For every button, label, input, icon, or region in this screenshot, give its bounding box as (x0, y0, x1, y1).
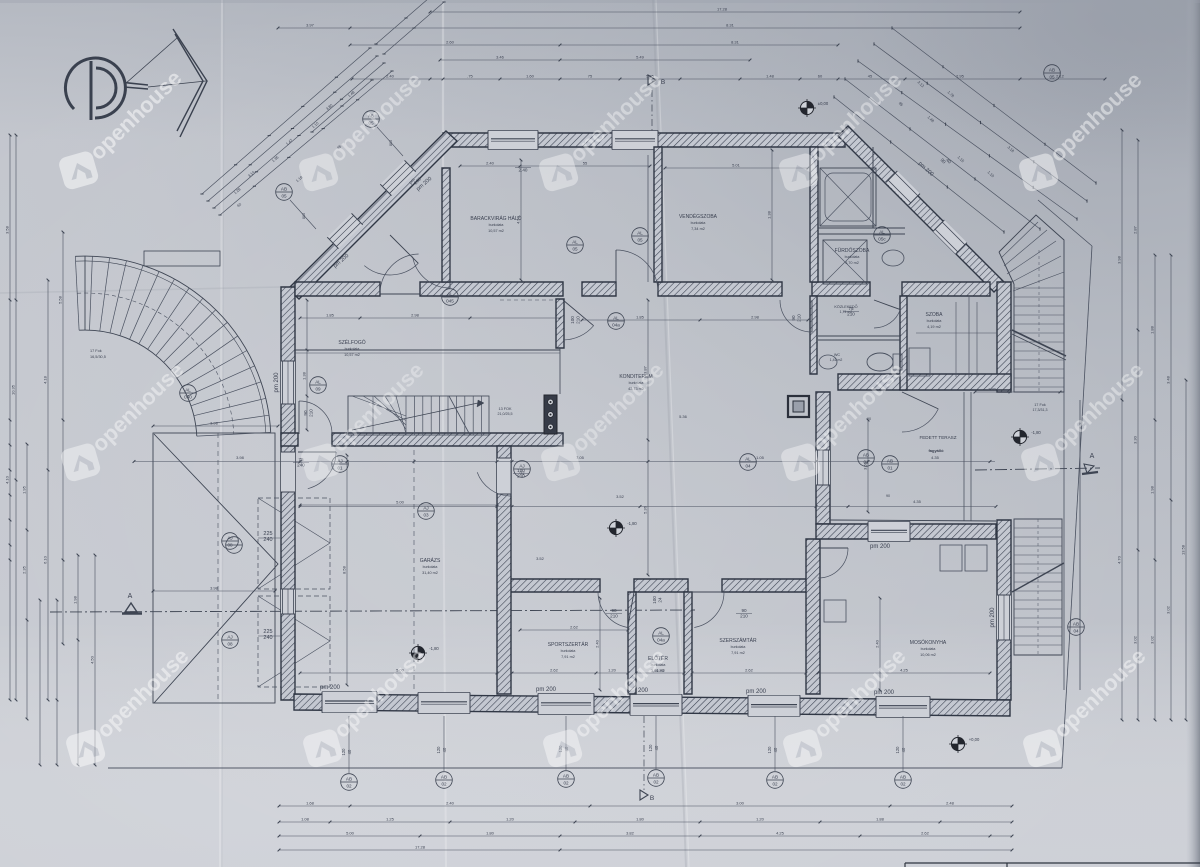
svg-text:75: 75 (848, 306, 854, 311)
svg-text:AL: AL (745, 456, 751, 461)
svg-text:GARÁZS: GARÁZS (420, 557, 441, 564)
svg-text:2.87: 2.87 (1133, 225, 1138, 234)
svg-text:2.40: 2.40 (875, 639, 880, 648)
svg-text:1.68: 1.68 (306, 801, 315, 806)
svg-text:A: A (128, 593, 133, 600)
svg-text:210: 210 (740, 614, 748, 619)
svg-text:1,41 m2: 1,41 m2 (830, 358, 843, 362)
svg-text:05c: 05c (878, 236, 886, 241)
svg-text:13.58: 13.58 (1181, 544, 1186, 555)
svg-text:60: 60 (818, 74, 823, 79)
svg-text:1.38: 1.38 (767, 210, 772, 219)
svg-text:AB: AB (1073, 621, 1079, 626)
svg-text:16,5/30,5: 16,5/30,5 (90, 355, 106, 359)
svg-text:2.40: 2.40 (446, 801, 455, 806)
svg-text:5.36: 5.36 (643, 505, 648, 514)
svg-text:2.62: 2.62 (570, 625, 579, 630)
svg-text:3.98: 3.98 (236, 455, 245, 460)
svg-text:2.35: 2.35 (22, 565, 27, 574)
svg-text:3.02: 3.02 (1150, 635, 1155, 644)
svg-text:8.58: 8.58 (342, 565, 347, 574)
svg-text:90: 90 (886, 494, 890, 498)
svg-text:1.20: 1.20 (608, 668, 617, 673)
svg-text:40: 40 (347, 749, 352, 754)
svg-text:A: A (1090, 453, 1095, 460)
svg-text:4,70 m2: 4,70 m2 (845, 261, 859, 265)
svg-text:210: 210 (610, 614, 618, 619)
svg-text:05: 05 (637, 237, 643, 242)
svg-text:burkolata: burkolata (691, 221, 706, 225)
svg-text:1.20: 1.20 (988, 387, 997, 392)
svg-text:1.80: 1.80 (636, 817, 645, 822)
svg-text:MOSÓKONYHA: MOSÓKONYHA (910, 639, 947, 646)
svg-text:5.49: 5.49 (636, 55, 645, 60)
svg-text:02: 02 (653, 779, 659, 784)
svg-text:40: 40 (442, 747, 447, 752)
svg-text:-1,80: -1,80 (627, 521, 637, 526)
svg-text:2.98: 2.98 (751, 315, 760, 320)
svg-text:31,40 m2: 31,40 m2 (422, 571, 438, 575)
svg-text:02: 02 (519, 470, 525, 475)
svg-text:AB: AB (653, 772, 659, 777)
svg-text:3.98: 3.98 (210, 586, 219, 591)
svg-text:17 Fok: 17 Fok (1034, 403, 1046, 407)
svg-text:+0,00: +0,00 (969, 737, 980, 742)
svg-text:AJ: AJ (519, 463, 524, 468)
svg-text:AL: AL (879, 229, 885, 234)
svg-text:AB: AB (863, 452, 869, 457)
svg-text:.75: .75 (467, 74, 473, 79)
svg-text:100: 100 (652, 596, 657, 604)
svg-text:1.38: 1.38 (302, 371, 307, 380)
svg-text:AL: AL (637, 230, 643, 235)
svg-text:FÜRDŐSZOBA: FÜRDŐSZOBA (835, 247, 870, 254)
svg-text:AL: AL (315, 379, 321, 384)
svg-text:13 FOK: 13 FOK (498, 407, 512, 411)
svg-text:17.28: 17.28 (717, 7, 728, 12)
svg-text:3.02: 3.02 (1133, 635, 1138, 644)
svg-text:AB: AB (772, 774, 778, 779)
svg-text:805: 805 (389, 140, 393, 146)
svg-text:1.20: 1.20 (756, 817, 765, 822)
svg-text:8.31: 8.31 (731, 40, 740, 45)
svg-text:1.98: 1.98 (73, 595, 78, 604)
svg-text:burkolata: burkolata (921, 647, 936, 651)
svg-text:VENDÉGSZOBA: VENDÉGSZOBA (679, 213, 718, 220)
svg-text:burkolata: burkolata (345, 347, 360, 351)
svg-text:01: 01 (887, 465, 893, 470)
svg-text:2.40: 2.40 (486, 161, 495, 166)
svg-text:4.18: 4.18 (43, 375, 48, 384)
svg-text:AB: AB (900, 774, 906, 779)
svg-text:AL: AL (447, 291, 453, 296)
svg-text:pm 200: pm 200 (990, 607, 996, 628)
svg-text:BARACKVIRÁG HÁLÓ: BARACKVIRÁG HÁLÓ (470, 215, 521, 222)
svg-text:5.36: 5.36 (679, 414, 688, 419)
svg-text:SZOBA: SZOBA (926, 312, 944, 318)
svg-text:AB: AB (346, 776, 352, 781)
svg-text:04: 04 (1073, 628, 1079, 633)
svg-text:4,19 m2: 4,19 m2 (927, 325, 941, 329)
svg-text:burkolata: burkolata (561, 649, 576, 653)
svg-text:02: 02 (346, 783, 352, 788)
svg-text:fagyálló: fagyálló (928, 448, 944, 453)
svg-text:01: 01 (863, 459, 869, 464)
svg-text:pm 200: pm 200 (536, 687, 557, 693)
svg-text:24: 24 (658, 597, 663, 603)
svg-text:1.48: 1.48 (766, 74, 775, 79)
svg-text:090: 090 (184, 394, 192, 399)
svg-text:AL: AL (658, 630, 664, 635)
svg-text:3.02: 3.02 (1166, 605, 1171, 614)
svg-text:10,57 m2: 10,57 m2 (488, 229, 504, 233)
svg-text:05: 05 (1049, 74, 1055, 79)
svg-text:40: 40 (773, 747, 778, 752)
svg-text:90: 90 (741, 608, 747, 613)
svg-text:AL: AL (613, 315, 619, 320)
svg-text:045: 045 (446, 298, 454, 303)
svg-text:pm 200: pm 200 (746, 689, 767, 695)
svg-text:AB: AB (887, 458, 893, 463)
svg-text:2.62: 2.62 (921, 831, 930, 836)
svg-text:3.98: 3.98 (1117, 255, 1122, 264)
svg-text:2.62: 2.62 (550, 668, 559, 673)
svg-text:09: 09 (315, 386, 321, 391)
svg-text:90: 90 (611, 608, 617, 613)
svg-text:75: 75 (588, 74, 593, 79)
svg-text:05: 05 (281, 193, 287, 198)
svg-text:4.70: 4.70 (1117, 555, 1122, 564)
svg-text:AL: AL (572, 239, 578, 244)
svg-text:10.35: 10.35 (11, 384, 16, 395)
svg-text:5.01: 5.01 (732, 163, 741, 168)
svg-text:AB: AB (281, 186, 287, 191)
svg-text:04a: 04a (612, 322, 620, 327)
svg-text:1.85: 1.85 (326, 313, 335, 318)
svg-text:210: 210 (309, 409, 314, 417)
svg-text:FEDETT TERASZ: FEDETT TERASZ (919, 435, 956, 440)
svg-text:3.46: 3.46 (496, 55, 505, 60)
svg-text:3.30: 3.30 (1133, 435, 1138, 444)
svg-text:5.00: 5.00 (346, 831, 355, 836)
svg-text:1.25: 1.25 (386, 817, 395, 822)
svg-text:10,06 m2: 10,06 m2 (920, 653, 936, 657)
svg-text:2.40: 2.40 (595, 639, 600, 648)
svg-text:burkolata: burkolata (731, 645, 746, 649)
svg-text:4.25: 4.25 (776, 831, 785, 836)
svg-text:4.35: 4.35 (913, 499, 922, 504)
svg-text:AB: AB (1049, 67, 1055, 72)
svg-text:120: 120 (436, 746, 441, 754)
svg-text:3.52: 3.52 (536, 556, 545, 561)
svg-text:WC: WC (834, 353, 841, 357)
svg-text:pm 200: pm 200 (320, 685, 341, 691)
svg-text:SZÉLFOGÓ: SZÉLFOGÓ (338, 339, 365, 346)
svg-text:2.62: 2.62 (745, 668, 754, 673)
svg-text:02: 02 (900, 781, 906, 786)
svg-text:2.48: 2.48 (946, 801, 955, 806)
svg-text:B: B (650, 795, 654, 802)
svg-text:210: 210 (797, 314, 802, 322)
svg-text:3.52: 3.52 (616, 494, 625, 499)
svg-text:4.50: 4.50 (90, 655, 95, 664)
svg-text:40: 40 (654, 745, 659, 750)
svg-text:17,3/31,3: 17,3/31,3 (1033, 408, 1048, 412)
svg-text:AB: AB (563, 773, 569, 778)
svg-text:02: 02 (441, 781, 447, 786)
svg-text:08: 08 (227, 641, 233, 646)
svg-text:1.98: 1.98 (1150, 485, 1155, 494)
svg-text:7,91 m2: 7,91 m2 (561, 655, 575, 659)
svg-text:17.28: 17.28 (415, 845, 426, 850)
svg-text:3.48: 3.48 (1166, 375, 1171, 384)
svg-text:02: 02 (772, 781, 778, 786)
svg-text:3.00: 3.00 (736, 801, 745, 806)
svg-text:3.58: 3.58 (5, 225, 10, 234)
svg-text:-1,80: -1,80 (429, 646, 439, 651)
svg-text:5.58: 5.58 (58, 295, 63, 304)
svg-text:7,91 m2: 7,91 m2 (731, 651, 745, 655)
svg-text:1.60: 1.60 (526, 74, 535, 79)
svg-text:120: 120 (895, 746, 900, 754)
svg-text:8.31: 8.31 (726, 23, 735, 28)
svg-text:1.05: 1.05 (756, 455, 765, 460)
svg-text:100: 100 (570, 316, 575, 324)
svg-text:burkolata: burkolata (423, 565, 438, 569)
svg-text:AJ: AJ (423, 505, 428, 510)
svg-text:2.98: 2.98 (411, 313, 420, 318)
svg-text:10,57 m2: 10,57 m2 (344, 353, 360, 357)
svg-text:4.53: 4.53 (516, 215, 521, 224)
svg-text:3.97: 3.97 (306, 23, 315, 28)
svg-text:3.82: 3.82 (626, 831, 635, 836)
svg-text:7,34 m2: 7,34 m2 (691, 227, 705, 231)
svg-text:AL: AL (185, 387, 191, 392)
svg-text:4.35: 4.35 (931, 455, 940, 460)
svg-text:5.00: 5.00 (396, 500, 405, 505)
svg-text:pm 200: pm 200 (870, 544, 891, 550)
svg-text:burkolata: burkolata (927, 319, 942, 323)
svg-text:45: 45 (868, 74, 873, 79)
svg-text:2.40: 2.40 (386, 74, 395, 79)
svg-text:1.85: 1.85 (636, 315, 645, 320)
svg-text:AB: AB (441, 774, 447, 779)
svg-text:1.88: 1.88 (876, 817, 885, 822)
svg-text:6.10: 6.10 (43, 555, 48, 564)
svg-text:2.40: 2.40 (519, 168, 528, 173)
svg-text:-1,80: -1,80 (1031, 430, 1041, 435)
svg-text:burkolata: burkolata (489, 223, 504, 227)
svg-text:SPORTSZERTÁR: SPORTSZERTÁR (548, 641, 589, 648)
svg-text:40: 40 (901, 747, 906, 752)
svg-text:17 Fok: 17 Fok (90, 349, 102, 353)
svg-text:2.60: 2.60 (446, 40, 455, 45)
svg-text:21,0/25,5: 21,0/25,5 (498, 412, 513, 416)
svg-text:210: 210 (576, 316, 581, 324)
svg-text:03: 03 (423, 512, 429, 517)
svg-text:120: 120 (767, 746, 772, 754)
svg-text:±0,00: ±0,00 (818, 101, 829, 106)
svg-text:120: 120 (648, 744, 653, 752)
svg-text:pm 200: pm 200 (274, 372, 280, 393)
svg-text:05: 05 (572, 246, 578, 251)
svg-text:1.95: 1.95 (22, 485, 27, 494)
svg-text:1.08: 1.08 (301, 817, 310, 822)
svg-text:1.20: 1.20 (506, 817, 515, 822)
svg-text:02: 02 (563, 780, 569, 785)
svg-text:210: 210 (847, 312, 855, 317)
svg-text:04: 04 (745, 463, 751, 468)
svg-text:1.80: 1.80 (486, 831, 495, 836)
svg-text:1.88: 1.88 (1150, 325, 1155, 334)
svg-text:4.10: 4.10 (5, 475, 10, 484)
svg-text:805: 805 (302, 213, 306, 219)
svg-text:burkolata: burkolata (845, 255, 860, 259)
svg-text:SZERSZÁMTÁR: SZERSZÁMTÁR (719, 637, 757, 644)
svg-text:KÖZLEKEDŐ: KÖZLEKEDŐ (834, 304, 857, 309)
svg-text:04a: 04a (657, 637, 665, 642)
svg-text:AJ: AJ (227, 634, 232, 639)
